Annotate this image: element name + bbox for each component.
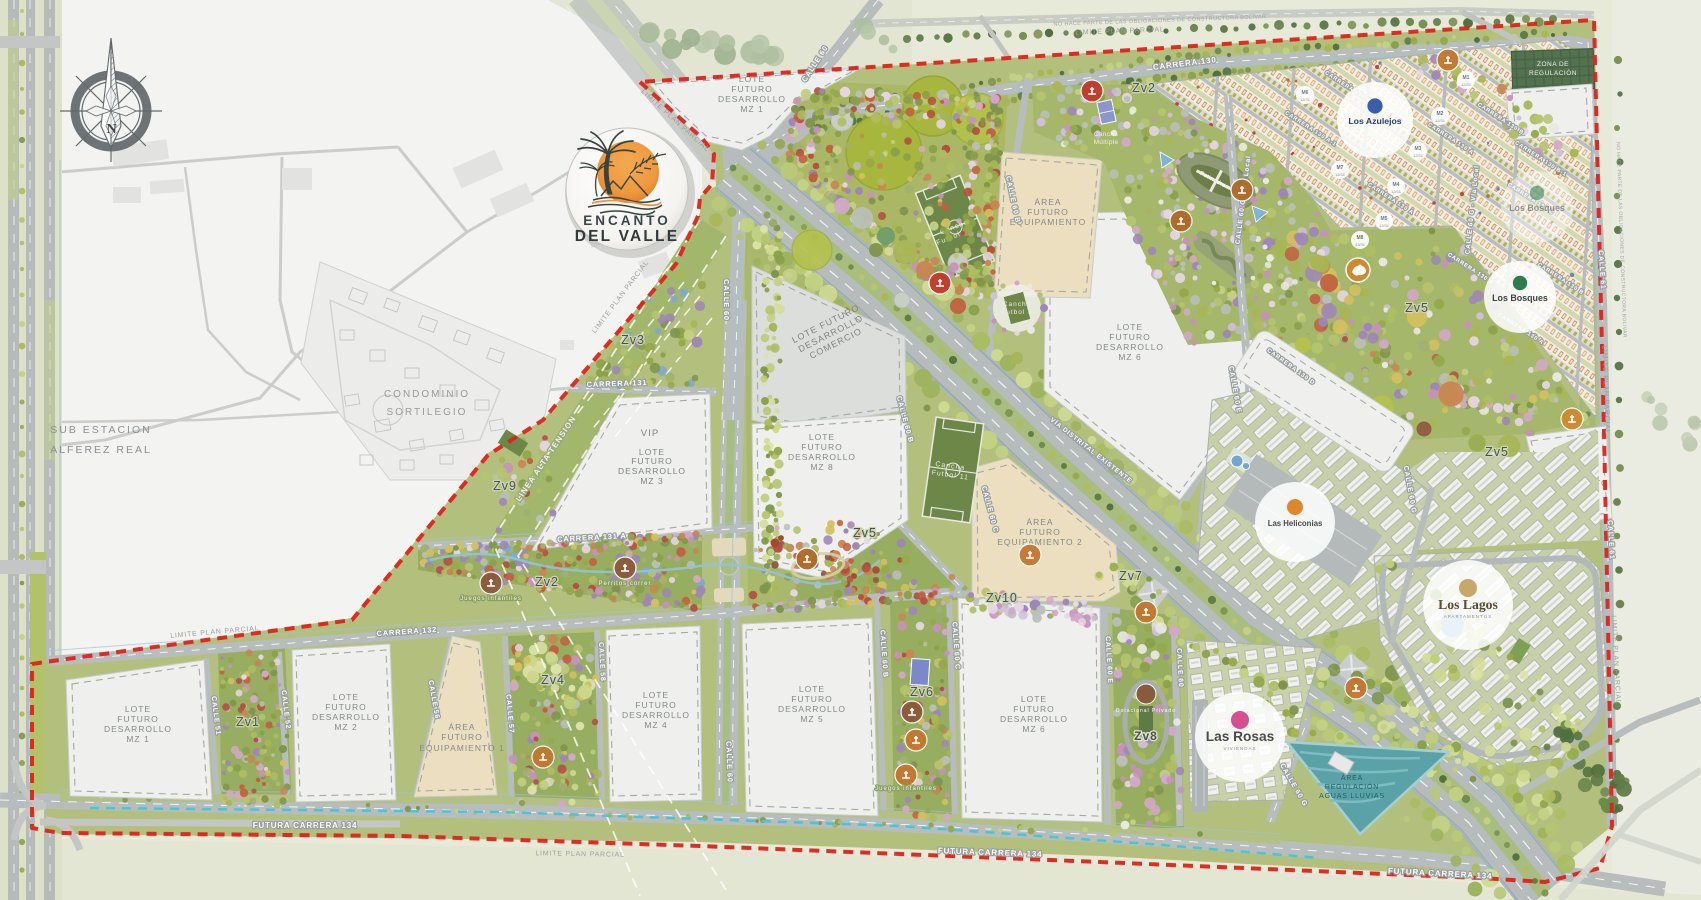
svg-text:12/31: 12/31 (1461, 82, 1472, 87)
svg-text:Zv8: Zv8 (1134, 729, 1158, 743)
svg-text:LOTE: LOTE (333, 692, 359, 702)
svg-text:M2: M2 (1437, 111, 1444, 117)
svg-text:Juegos infantiles: Juegos infantiles (875, 786, 937, 792)
svg-text:12/31: 12/31 (1379, 223, 1390, 228)
svg-text:SUB ESTACION: SUB ESTACION (50, 424, 151, 436)
svg-text:ENCANTO: ENCANTO (583, 213, 671, 228)
svg-text:MZ 8: MZ 8 (810, 462, 833, 472)
svg-text:M8: M8 (1357, 235, 1364, 241)
svg-text:DESARROLLO: DESARROLLO (1096, 342, 1164, 352)
svg-text:N: N (106, 122, 117, 137)
svg-text:FUTURO: FUTURO (801, 442, 842, 452)
svg-text:MZ 1: MZ 1 (740, 104, 763, 114)
svg-text:EQUIPAMIENTO 1: EQUIPAMIENTO 1 (419, 743, 504, 753)
svg-text:FUTURO: FUTURO (631, 456, 672, 466)
svg-text:Zv9: Zv9 (493, 479, 517, 493)
svg-text:Los Azulejos: Los Azulejos (1348, 116, 1401, 126)
svg-text:Perritos correr: Perritos correr (598, 581, 651, 587)
svg-text:MZ 5: MZ 5 (800, 714, 823, 724)
svg-text:12/31: 12/31 (1391, 189, 1402, 194)
svg-text:FUTURO: FUTURO (1019, 527, 1060, 537)
svg-text:FUTURO: FUTURO (1027, 207, 1068, 217)
svg-text:MZ 2: MZ 2 (334, 722, 357, 732)
svg-text:APARTAMENTOS: APARTAMENTOS (1444, 614, 1492, 619)
svg-text:Los Bosques: Los Bosques (1509, 203, 1565, 213)
svg-text:DESARROLLO: DESARROLLO (1000, 714, 1068, 724)
svg-text:Cancha: Cancha (1003, 301, 1031, 308)
svg-text:FUTURO: FUTURO (731, 84, 772, 94)
svg-text:Zv3: Zv3 (621, 333, 645, 347)
svg-text:CALLE 60: CALLE 60 (724, 741, 734, 783)
svg-text:REGULACIÓN: REGULACIÓN (1529, 68, 1577, 77)
svg-text:FUTURO: FUTURO (325, 702, 366, 712)
svg-text:M4: M4 (1393, 182, 1400, 188)
svg-text:12/31: 12/31 (1335, 172, 1346, 177)
svg-text:Zv2: Zv2 (535, 575, 559, 589)
svg-text:CONDOMINIO: CONDOMINIO (384, 389, 470, 400)
svg-text:FUTURO: FUTURO (635, 700, 676, 710)
svg-text:FUTURO: FUTURO (441, 732, 482, 742)
svg-text:MZ 6: MZ 6 (1022, 724, 1045, 734)
svg-text:LOTE: LOTE (1021, 694, 1047, 704)
svg-text:ÁREA: ÁREA (1034, 197, 1061, 207)
svg-text:VIVIENDAS: VIVIENDAS (1223, 746, 1256, 751)
svg-text:AGUAS LLUVIAS: AGUAS LLUVIAS (1319, 793, 1385, 800)
svg-text:Cancha: Cancha (1094, 131, 1118, 138)
svg-text:Múltiple: Múltiple (1094, 139, 1119, 146)
svg-text:12/31: 12/31 (1413, 153, 1424, 158)
svg-text:Zv5: Zv5 (853, 526, 877, 540)
svg-text:Las Rosas: Las Rosas (1206, 729, 1275, 744)
svg-text:Las Heliconias: Las Heliconias (1268, 519, 1323, 528)
svg-text:MZ 6: MZ 6 (1118, 352, 1141, 362)
svg-text:Zv10: Zv10 (986, 591, 1018, 605)
svg-text:EQUIPAMIENTO 2: EQUIPAMIENTO 2 (997, 537, 1082, 547)
svg-text:ÁREA: ÁREA (1026, 517, 1053, 527)
svg-text:FUTURA CARRERA 134: FUTURA CARRERA 134 (253, 821, 357, 830)
svg-text:12/31: 12/31 (1435, 118, 1446, 123)
svg-text:ÁREA: ÁREA (1341, 773, 1363, 782)
svg-text:FUTURO: FUTURO (1013, 704, 1054, 714)
svg-text:MZ 4: MZ 4 (644, 720, 667, 730)
svg-text:LOTE: LOTE (1117, 322, 1143, 332)
svg-text:ALFEREZ REAL: ALFEREZ REAL (50, 444, 152, 456)
svg-text:DEL VALLE: DEL VALLE (575, 228, 679, 245)
svg-text:DESARROLLO: DESARROLLO (104, 724, 172, 734)
svg-text:LOTE: LOTE (799, 684, 825, 694)
svg-text:12/31: 12/31 (1355, 242, 1366, 247)
svg-text:MZ 1: MZ 1 (126, 734, 149, 744)
svg-text:Zv5: Zv5 (1405, 301, 1429, 315)
svg-text:DESARROLLO: DESARROLLO (788, 452, 856, 462)
svg-text:DESARROLLO: DESARROLLO (718, 94, 786, 104)
svg-text:DESARROLLO: DESARROLLO (312, 712, 380, 722)
svg-text:SORTILEGIO: SORTILEGIO (387, 407, 468, 418)
svg-text:M6: M6 (1302, 90, 1309, 96)
svg-text:Futbol 5: Futbol 5 (1001, 309, 1033, 316)
svg-text:M5: M5 (1381, 216, 1388, 222)
svg-text:12/31: 12/31 (1300, 97, 1311, 102)
svg-text:Los Lagos: Los Lagos (1438, 597, 1498, 612)
svg-text:LOTE: LOTE (125, 704, 151, 714)
svg-text:LOTE: LOTE (809, 432, 835, 442)
svg-text:MZ 3: MZ 3 (640, 476, 663, 486)
svg-text:Juegos infantiles: Juegos infantiles (460, 596, 522, 602)
svg-text:DESARROLLO: DESARROLLO (778, 704, 846, 714)
svg-text:Dotacional Privado: Dotacional Privado (1116, 708, 1176, 714)
svg-text:FUTURO: FUTURO (1109, 332, 1150, 342)
svg-text:Zv1: Zv1 (236, 715, 260, 729)
svg-text:ÁREA: ÁREA (448, 722, 475, 732)
svg-text:M1: M1 (1463, 75, 1470, 81)
svg-text:Los Bosques: Los Bosques (1492, 293, 1548, 303)
svg-text:FUTURO: FUTURO (117, 714, 158, 724)
svg-text:FUTURO: FUTURO (791, 694, 832, 704)
svg-text:Zv2: Zv2 (1132, 81, 1156, 95)
svg-text:DESARROLLO: DESARROLLO (622, 710, 690, 720)
svg-text:CALLE 60: CALLE 60 (722, 279, 731, 321)
svg-text:ZONA DE: ZONA DE (1537, 61, 1569, 68)
svg-text:VIP: VIP (641, 428, 660, 439)
svg-text:Zv7: Zv7 (1119, 569, 1143, 583)
svg-text:M7: M7 (1337, 165, 1344, 171)
svg-text:REGULACIÓN: REGULACIÓN (1325, 782, 1379, 791)
svg-text:M3: M3 (1415, 146, 1422, 152)
svg-text:Zv5: Zv5 (1485, 445, 1509, 459)
svg-text:LOTE: LOTE (643, 690, 669, 700)
svg-text:Zv4: Zv4 (541, 673, 565, 687)
svg-text:DESARROLLO: DESARROLLO (618, 466, 686, 476)
svg-text:Zv6: Zv6 (910, 685, 934, 699)
